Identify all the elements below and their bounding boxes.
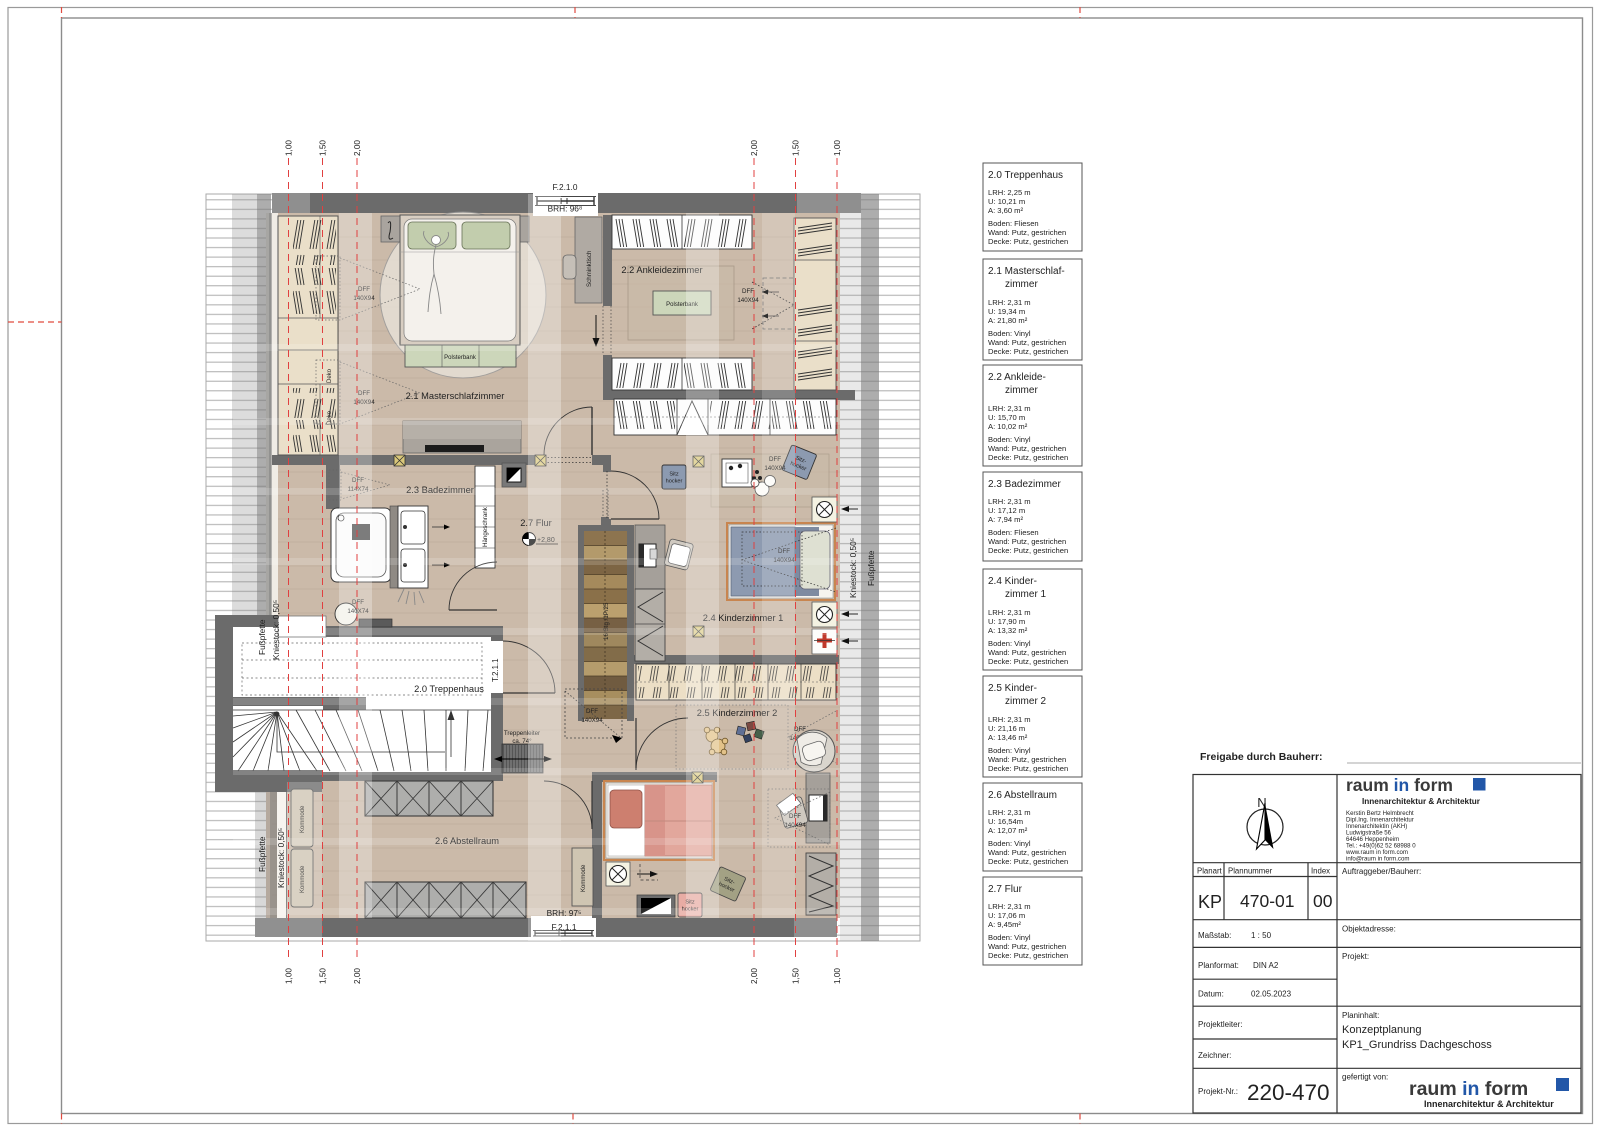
svg-text:2.7 Flur: 2.7 Flur <box>988 884 1023 895</box>
svg-text:Kniestock: 0,50⁵: Kniestock: 0,50⁵ <box>848 538 858 598</box>
svg-text:Wand: Putz, gestrichen: Wand: Putz, gestrichen <box>988 848 1066 857</box>
svg-text:info@raum in form.com: info@raum in form.com <box>1346 856 1409 863</box>
svg-text:hocker: hocker <box>666 479 683 485</box>
svg-text:Fußpfette: Fußpfette <box>257 619 267 655</box>
svg-text:2.5 Kinder-: 2.5 Kinder- <box>988 683 1037 694</box>
svg-text:Sitz: Sitz <box>669 472 679 478</box>
svg-text:Projektleiter:: Projektleiter: <box>1198 1020 1242 1029</box>
svg-text:Boden: Vinyl: Boden: Vinyl <box>988 839 1031 848</box>
svg-text:Decke: Putz, gestrichen: Decke: Putz, gestrichen <box>988 764 1068 773</box>
svg-text:LRH: 2,31 m: LRH: 2,31 m <box>988 404 1031 413</box>
svg-text:LRH: 2,31 m: LRH: 2,31 m <box>988 808 1031 817</box>
svg-text:Innenarchitektur & Architektur: Innenarchitektur & Architektur <box>1362 797 1481 806</box>
svg-text:gefertigt von:: gefertigt von: <box>1342 1073 1388 1082</box>
svg-text:zimmer 2: zimmer 2 <box>1005 696 1047 707</box>
svg-text:Objektadresse:: Objektadresse: <box>1342 925 1396 934</box>
svg-text:DFF: DFF <box>586 708 598 715</box>
svg-text:zimmer: zimmer <box>1005 279 1038 290</box>
svg-text:U: 17,06 m: U: 17,06 m <box>988 911 1025 920</box>
svg-text:A: 21,80 m²: A: 21,80 m² <box>988 316 1028 325</box>
svg-text:Wand: Putz, gestrichen: Wand: Putz, gestrichen <box>988 537 1066 546</box>
svg-text:2.4 Kinder-: 2.4 Kinder- <box>988 576 1037 587</box>
svg-text:Decke: Putz, gestrichen: Decke: Putz, gestrichen <box>988 546 1068 555</box>
svg-text:2,00: 2,00 <box>750 968 759 984</box>
svg-text:LRH: 2,31 m: LRH: 2,31 m <box>988 298 1031 307</box>
svg-text:Deko: Deko <box>327 368 333 383</box>
svg-text:KP: KP <box>1198 892 1222 912</box>
svg-text:U: 17,90 m: U: 17,90 m <box>988 617 1025 626</box>
svg-text:Boden: Fliesen: Boden: Fliesen <box>988 528 1039 537</box>
svg-text:Wand: Putz, gestrichen: Wand: Putz, gestrichen <box>988 648 1066 657</box>
svg-text:Boden: Fliesen: Boden: Fliesen <box>988 219 1039 228</box>
svg-text:Polsterbank: Polsterbank <box>444 355 477 361</box>
svg-text:Fußpfette: Fußpfette <box>866 550 876 586</box>
svg-text:raum in form: raum in form <box>1346 775 1453 795</box>
svg-text:A: 7,94 m²: A: 7,94 m² <box>988 515 1023 524</box>
svg-text:Boden: Vinyl: Boden: Vinyl <box>988 435 1031 444</box>
svg-text:BRH: 97⁵: BRH: 97⁵ <box>547 908 582 918</box>
svg-text:Planformat:: Planformat: <box>1198 961 1239 970</box>
svg-text:DIN A2: DIN A2 <box>1253 961 1279 970</box>
svg-text:Boden: Vinyl: Boden: Vinyl <box>988 329 1031 338</box>
svg-text:U: 21,16 m: U: 21,16 m <box>988 724 1025 733</box>
svg-text:Decke: Putz, gestrichen: Decke: Putz, gestrichen <box>988 657 1068 666</box>
svg-text:U: 10,21 m: U: 10,21 m <box>988 197 1025 206</box>
svg-text:A: 3,60 m²: A: 3,60 m² <box>988 206 1023 215</box>
svg-text:zimmer 1: zimmer 1 <box>1005 589 1047 600</box>
svg-text:U: 16,54m: U: 16,54m <box>988 817 1023 826</box>
svg-text:U: 17,12 m: U: 17,12 m <box>988 506 1025 515</box>
svg-text:2.1 Masterschlafzimmer: 2.1 Masterschlafzimmer <box>406 391 505 401</box>
svg-text:Boden: Vinyl: Boden: Vinyl <box>988 639 1031 648</box>
svg-text:Kniestock: 0,50⁵: Kniestock: 0,50⁵ <box>271 600 281 660</box>
svg-text:2.6 Abstellraum: 2.6 Abstellraum <box>988 790 1057 801</box>
svg-text:U: 19,34 m: U: 19,34 m <box>988 307 1025 316</box>
svg-text:140X94: 140X94 <box>737 297 759 304</box>
svg-text:Konzeptplanung: Konzeptplanung <box>1342 1024 1422 1036</box>
svg-text:1,50: 1,50 <box>319 968 328 984</box>
svg-text:LRH: 2,31 m: LRH: 2,31 m <box>988 902 1031 911</box>
svg-text:Wand: Putz, gestrichen: Wand: Putz, gestrichen <box>988 942 1066 951</box>
svg-text:Index: Index <box>1311 867 1330 876</box>
svg-text:LRH: 2,31 m: LRH: 2,31 m <box>988 715 1031 724</box>
svg-text:2.0 Treppenhaus: 2.0 Treppenhaus <box>414 684 484 694</box>
svg-text:LRH: 2,31 m: LRH: 2,31 m <box>988 497 1031 506</box>
svg-text:zimmer: zimmer <box>1005 385 1038 396</box>
svg-text:LRH: 2,31 m: LRH: 2,31 m <box>988 608 1031 617</box>
svg-text:Projekt:: Projekt: <box>1342 952 1369 961</box>
svg-text:Datum:: Datum: <box>1198 990 1224 999</box>
svg-text:F.2.1.1: F.2.1.1 <box>552 922 577 932</box>
svg-text:2,00: 2,00 <box>353 968 362 984</box>
svg-text:470-01: 470-01 <box>1240 891 1295 911</box>
svg-text:Plannummer: Plannummer <box>1228 867 1273 876</box>
svg-text:1,00: 1,00 <box>285 140 294 156</box>
svg-text:Projekt-Nr.:: Projekt-Nr.: <box>1198 1087 1238 1096</box>
svg-text:Hängeschrank: Hängeschrank <box>482 506 489 547</box>
svg-text:Decke: Putz, gestrichen: Decke: Putz, gestrichen <box>988 453 1068 462</box>
svg-text:raum in form: raum in form <box>1409 1078 1528 1100</box>
svg-text:A: 12,07 m²: A: 12,07 m² <box>988 826 1028 835</box>
svg-text:2.0 Treppenhaus: 2.0 Treppenhaus <box>988 170 1063 181</box>
svg-text:DFF: DFF <box>742 288 754 295</box>
svg-text:Decke: Putz, gestrichen: Decke: Putz, gestrichen <box>988 857 1068 866</box>
svg-text:Wand: Putz, gestrichen: Wand: Putz, gestrichen <box>988 444 1066 453</box>
svg-text:1,50: 1,50 <box>792 968 801 984</box>
svg-text:2.2 Ankleide-: 2.2 Ankleide- <box>988 372 1046 383</box>
svg-text:T.2.1.1: T.2.1.1 <box>491 659 500 682</box>
svg-text:00: 00 <box>1313 891 1333 911</box>
svg-text:BRH: 96⁸: BRH: 96⁸ <box>548 204 583 214</box>
svg-text:Kniestock: 0,50⁵: Kniestock: 0,50⁵ <box>276 828 286 888</box>
svg-text:Decke: Putz, gestrichen: Decke: Putz, gestrichen <box>988 237 1068 246</box>
svg-text:KP1_Grundriss Dachgeschoss: KP1_Grundriss Dachgeschoss <box>1342 1039 1492 1051</box>
svg-text:Wand: Putz, gestrichen: Wand: Putz, gestrichen <box>988 228 1066 237</box>
svg-text:1,00: 1,00 <box>833 140 842 156</box>
svg-text:F.2.1.0: F.2.1.0 <box>553 182 578 192</box>
svg-text:1,00: 1,00 <box>833 968 842 984</box>
svg-text:Fußpfette: Fußpfette <box>257 836 267 872</box>
svg-text:1,50: 1,50 <box>319 140 328 156</box>
svg-text:Decke: Putz, gestrichen: Decke: Putz, gestrichen <box>988 347 1068 356</box>
svg-text:2.3 Badezimmer: 2.3 Badezimmer <box>988 479 1061 490</box>
svg-text:A: 13,32 m²: A: 13,32 m² <box>988 626 1028 635</box>
svg-text:2,00: 2,00 <box>353 140 362 156</box>
svg-text:Schminktisch: Schminktisch <box>586 250 593 287</box>
svg-text:LRH: 2,25 m: LRH: 2,25 m <box>988 188 1031 197</box>
svg-text:2.1 Masterschlaf-: 2.1 Masterschlaf- <box>988 266 1065 277</box>
svg-text:Boden: Vinyl: Boden: Vinyl <box>988 746 1031 755</box>
svg-text:A: 10,02 m²: A: 10,02 m² <box>988 422 1028 431</box>
svg-text:140X94: 140X94 <box>581 717 603 724</box>
svg-text:2,00: 2,00 <box>750 140 759 156</box>
svg-text:Maßstab:: Maßstab: <box>1198 931 1231 940</box>
svg-text:Planart: Planart <box>1197 867 1223 876</box>
svg-text:Zeichner:: Zeichner: <box>1198 1051 1231 1060</box>
svg-text:Boden: Vinyl: Boden: Vinyl <box>988 933 1031 942</box>
svg-text:Innenarchitektur & Architektur: Innenarchitektur & Architektur <box>1424 1099 1554 1109</box>
svg-text:A: 9,45m²: A: 9,45m² <box>988 920 1021 929</box>
svg-text:Wand: Putz, gestrichen: Wand: Putz, gestrichen <box>988 755 1066 764</box>
svg-text:Wand: Putz, gestrichen: Wand: Putz, gestrichen <box>988 338 1066 347</box>
svg-text:Freigabe durch Bauherr:: Freigabe durch Bauherr: <box>1200 751 1323 763</box>
svg-text:Planinhalt:: Planinhalt: <box>1342 1011 1379 1020</box>
svg-text:U: 15,70 m: U: 15,70 m <box>988 413 1025 422</box>
svg-text:Decke: Putz, gestrichen: Decke: Putz, gestrichen <box>988 951 1068 960</box>
svg-text:Auftraggeber/Bauherr:: Auftraggeber/Bauherr: <box>1342 867 1421 876</box>
svg-text:1 : 50: 1 : 50 <box>1251 931 1272 940</box>
svg-text:220-470: 220-470 <box>1247 1080 1330 1105</box>
svg-text:1,50: 1,50 <box>792 140 801 156</box>
svg-text:A: 13,46 m²: A: 13,46 m² <box>988 733 1028 742</box>
svg-text:02.05.2023: 02.05.2023 <box>1251 990 1292 999</box>
svg-text:Kommode: Kommode <box>581 864 587 892</box>
svg-text:1,00: 1,00 <box>285 968 294 984</box>
